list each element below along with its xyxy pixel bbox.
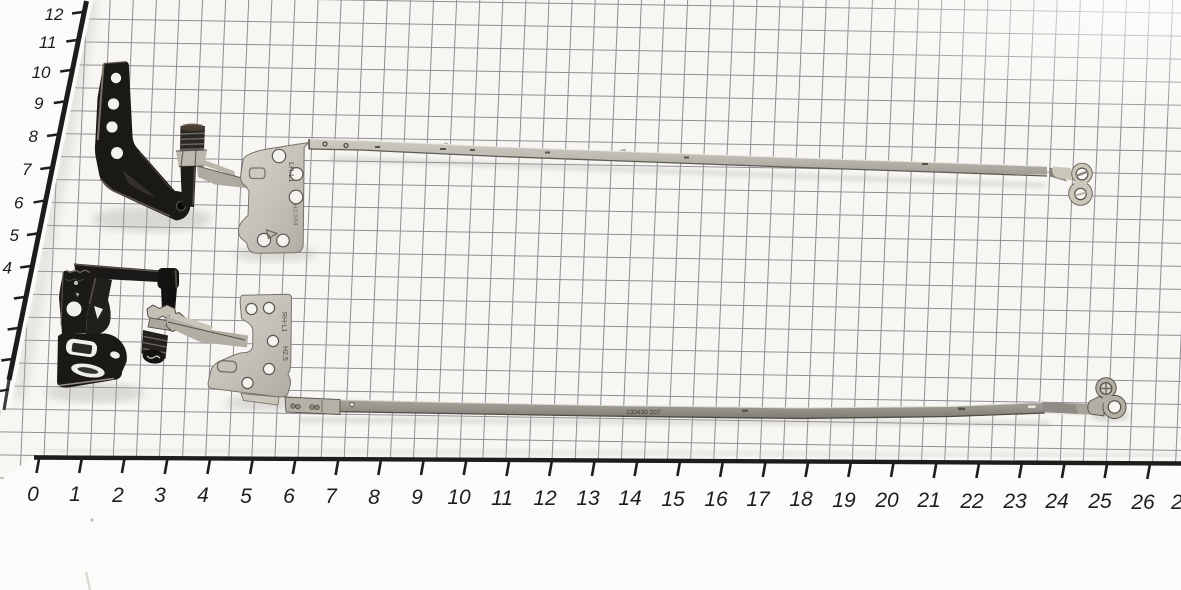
- svg-text:H2.5X4: H2.5X4: [291, 204, 299, 226]
- svg-text:3: 3: [154, 484, 166, 507]
- svg-text:7: 7: [22, 160, 32, 179]
- svg-text:4: 4: [197, 484, 209, 507]
- svg-text:18: 18: [789, 488, 813, 511]
- svg-text:8: 8: [368, 486, 380, 509]
- svg-text:22: 22: [959, 490, 984, 513]
- svg-text:2: 2: [1170, 491, 1181, 514]
- svg-text:14: 14: [618, 487, 641, 510]
- svg-text:2: 2: [111, 484, 124, 507]
- svg-text:12: 12: [45, 5, 64, 24]
- svg-text:10: 10: [447, 486, 471, 509]
- svg-text:9: 9: [34, 94, 44, 113]
- svg-text:1: 1: [69, 483, 81, 506]
- svg-text:20: 20: [874, 489, 899, 512]
- svg-text:16: 16: [704, 488, 728, 511]
- svg-text:10: 10: [32, 63, 51, 82]
- svg-text:5: 5: [240, 485, 252, 508]
- svg-text:23: 23: [1002, 490, 1027, 513]
- svg-text:6: 6: [14, 194, 24, 213]
- svg-text:6: 6: [283, 485, 295, 508]
- svg-text:12: 12: [533, 487, 557, 510]
- svg-text:24: 24: [1044, 490, 1068, 513]
- svg-text:17: 17: [746, 488, 771, 511]
- svg-text:LH-L1: LH-L1: [287, 162, 296, 182]
- svg-text:13: 13: [576, 487, 600, 510]
- svg-text:5: 5: [10, 226, 20, 245]
- svg-text:19: 19: [832, 489, 856, 512]
- svg-text:25: 25: [1087, 490, 1112, 513]
- svg-text:8: 8: [29, 127, 39, 146]
- svg-text:15: 15: [661, 488, 685, 511]
- svg-text:4: 4: [3, 259, 12, 278]
- svg-text:26: 26: [1130, 491, 1155, 514]
- svg-text:21: 21: [916, 489, 940, 512]
- svg-text:7: 7: [325, 485, 338, 508]
- svg-text:11: 11: [491, 487, 513, 510]
- svg-text:H2.5: H2.5: [281, 346, 288, 361]
- svg-text:130430 207: 130430 207: [626, 409, 661, 416]
- svg-text:11: 11: [39, 33, 57, 52]
- svg-text:9: 9: [411, 486, 423, 509]
- svg-text:RH-L1: RH-L1: [280, 312, 287, 332]
- svg-text:0: 0: [27, 483, 39, 506]
